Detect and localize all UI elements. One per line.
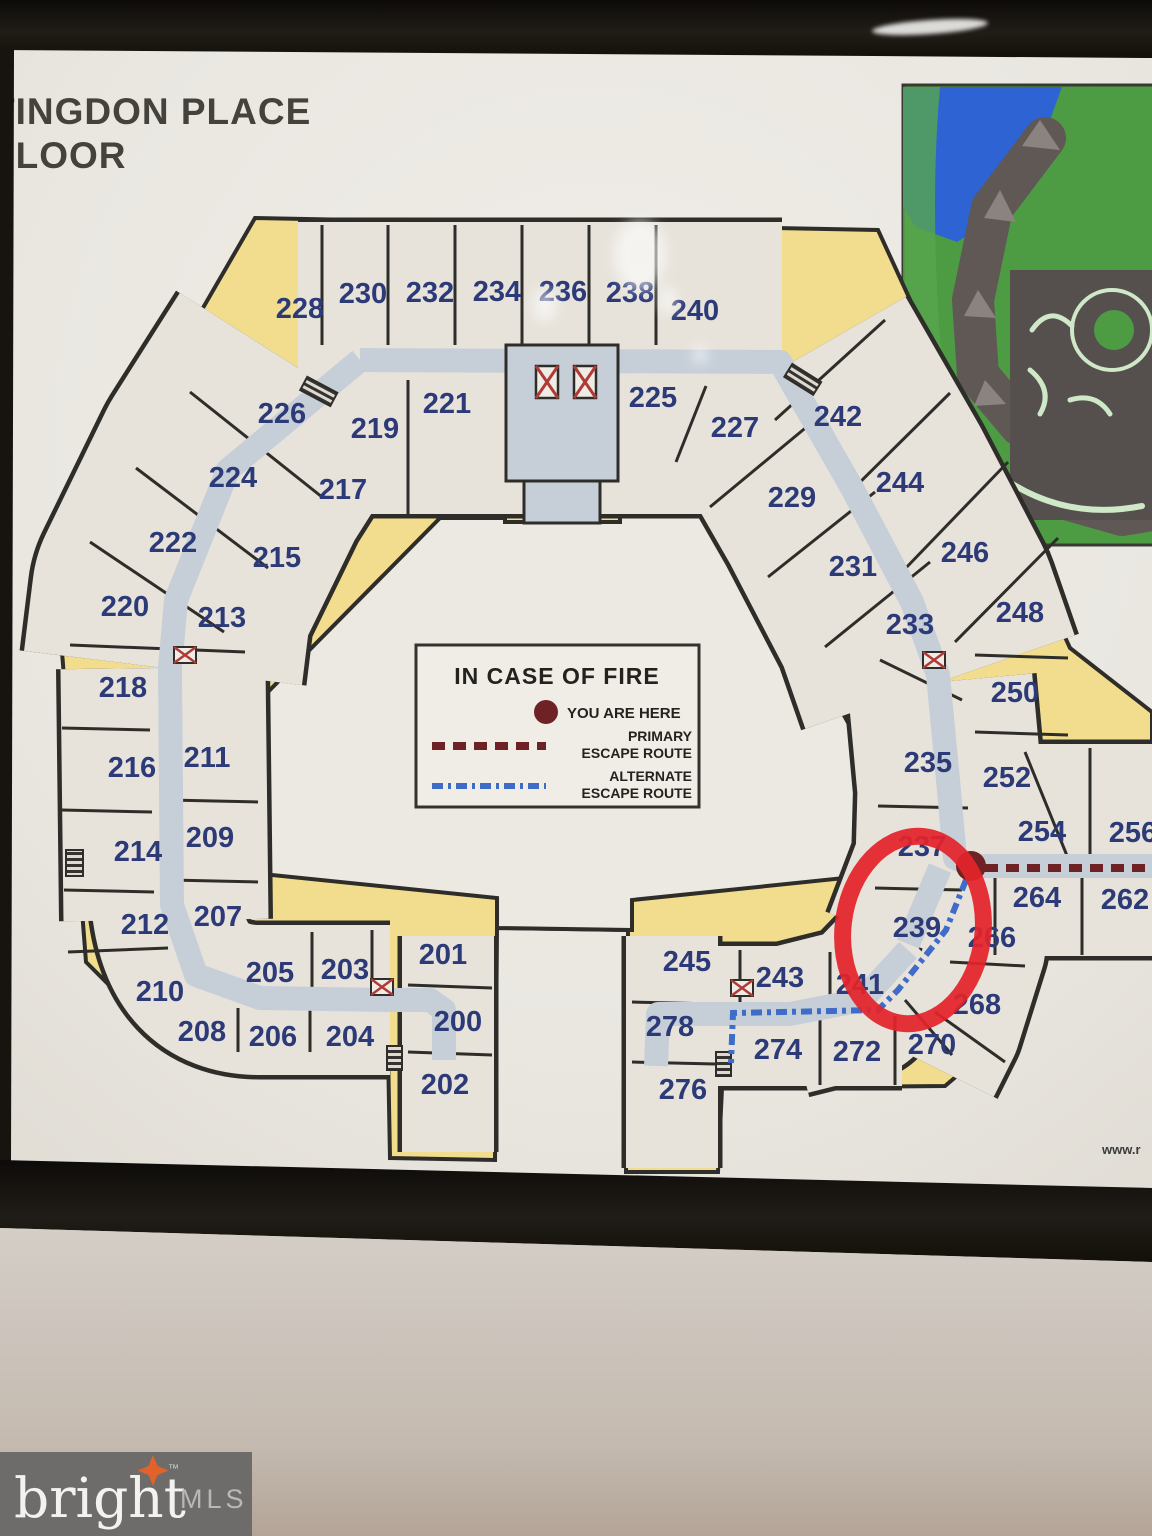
unit-228: 228 [276,293,324,325]
elevator-icon [536,366,558,398]
unit-207: 207 [194,901,242,933]
legend-alternate-label: ALTERNATE [609,768,692,784]
unit-225: 225 [629,382,677,414]
unit-246: 246 [941,537,989,569]
unit-270: 270 [908,1029,956,1061]
unit-232: 232 [406,277,454,309]
unit-248: 248 [996,597,1044,629]
unit-239: 239 [893,912,941,944]
unit-233: 233 [886,609,934,641]
unit-244: 244 [876,467,924,499]
legend-alternate-label2: ESCAPE ROUTE [582,785,692,801]
unit-240: 240 [671,295,719,327]
unit-215: 215 [253,542,301,574]
you-are-here-dot-legend [534,700,558,724]
unit-224: 224 [209,462,257,494]
unit-245: 245 [663,946,711,978]
unit-210: 210 [136,976,184,1008]
legend-title: IN CASE OF FIRE [454,663,659,689]
unit-242: 242 [814,401,862,433]
unit-226: 226 [258,398,306,430]
unit-211: 211 [184,742,231,774]
unit-235: 235 [904,747,952,779]
unit-216: 216 [108,752,156,784]
legend-primary-label: PRIMARY [628,728,693,744]
unit-221: 221 [423,388,471,420]
brightmls-watermark: bright ™ MLS [0,1452,252,1536]
unit-276: 276 [659,1074,707,1106]
unit-219: 219 [351,413,399,445]
unit-254: 254 [1018,816,1066,848]
legend-primary-label2: ESCAPE ROUTE [582,745,692,761]
brightmls-brand: bright [14,1466,186,1530]
unit-209: 209 [186,822,234,854]
unit-205: 205 [246,957,294,989]
unit-256: 256 [1109,817,1152,849]
plan-title: TINGDON PLACE [0,91,311,132]
fire-legend: IN CASE OF FIRE YOU ARE HERE PRIMARY ESC… [416,645,699,807]
unit-250: 250 [991,677,1039,709]
trademark-symbol: ™ [168,1463,179,1475]
unit-218: 218 [99,672,147,704]
unit-203: 203 [321,954,369,986]
unit-220: 220 [101,591,149,623]
unit-222: 222 [149,527,197,559]
unit-252: 252 [983,762,1031,794]
unit-229: 229 [768,482,816,514]
plan-subtitle: FLOOR [0,135,126,176]
framed-fire-escape-plan-photo: TINGDON PLACE FLOOR [0,0,1152,1536]
unit-278: 278 [646,1011,694,1043]
unit-201: 201 [419,939,467,971]
unit-213: 213 [198,602,246,634]
unit-230: 230 [339,278,387,310]
unit-212: 212 [121,909,169,941]
unit-217: 217 [319,474,367,506]
unit-272: 272 [833,1036,881,1068]
unit-234: 234 [473,276,521,308]
unit-202: 202 [421,1069,469,1101]
unit-206: 206 [249,1021,297,1053]
elevator-lobby [506,345,618,523]
unit-204: 204 [326,1021,374,1053]
unit-227: 227 [711,412,759,444]
unit-200: 200 [434,1006,482,1038]
unit-243: 243 [756,962,804,994]
unit-264: 264 [1013,882,1061,914]
unit-274: 274 [754,1034,802,1066]
legend-you-are-here: YOU ARE HERE [567,705,681,722]
unit-231: 231 [829,551,877,583]
unit-214: 214 [114,836,162,868]
brightmls-suffix: MLS [180,1484,248,1514]
unit-262: 262 [1101,884,1149,916]
unit-208: 208 [178,1016,226,1048]
plan-url-fragment: www.r [1101,1142,1141,1157]
elevator-icon [574,366,596,398]
